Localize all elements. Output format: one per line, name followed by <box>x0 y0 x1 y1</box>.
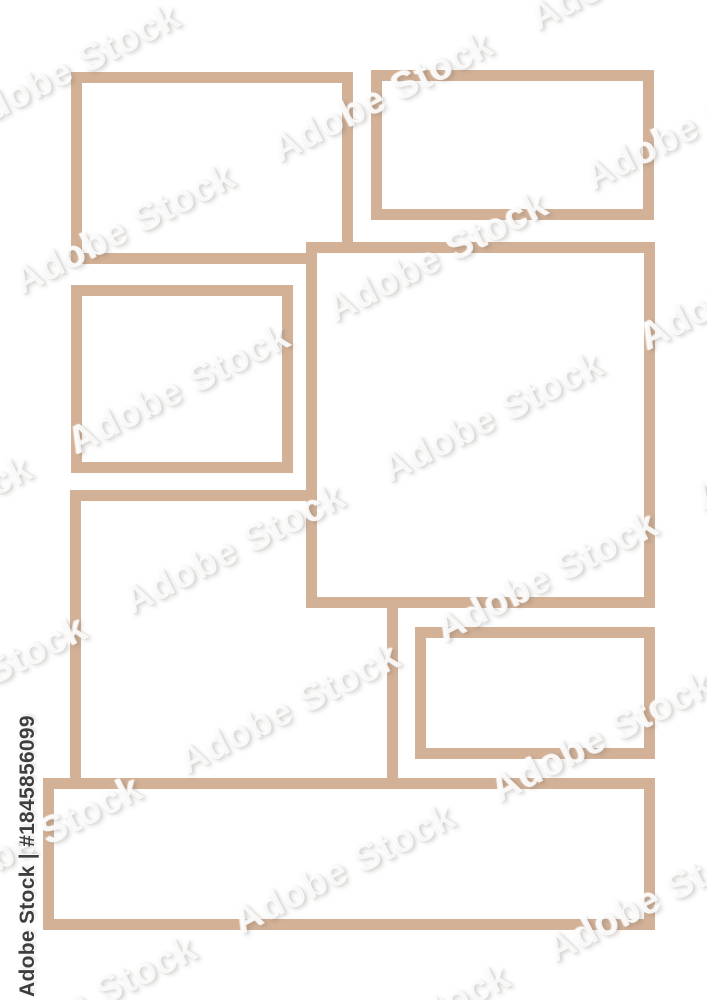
stock-id-label: Adobe Stock | #1845856099 <box>16 715 40 997</box>
frame-center <box>306 242 655 608</box>
frame-bottom <box>43 778 655 930</box>
collage-frames <box>0 0 707 1000</box>
frame-top-right <box>371 70 654 220</box>
frame-top-left <box>71 72 353 264</box>
stock-preview-image: Adobe StockAdobe StockAdobe StockAdobe S… <box>0 0 707 1000</box>
frame-middle-left <box>71 285 293 473</box>
frame-lower-right <box>415 627 655 759</box>
